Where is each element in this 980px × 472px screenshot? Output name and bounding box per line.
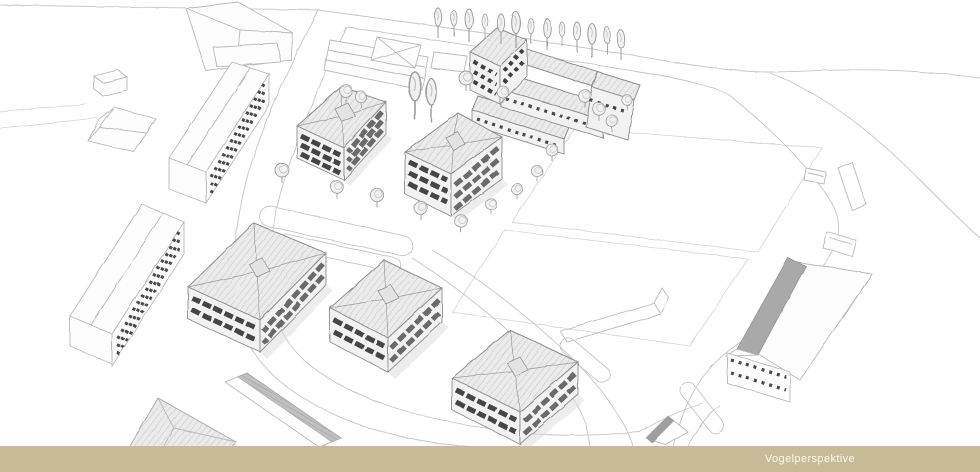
- new-building-upper-west: [297, 87, 392, 186]
- field-wall: [560, 303, 661, 342]
- sketch-scene: [0, 2, 980, 471]
- context-flat-complex: [324, 37, 467, 90]
- caption-bar: Vogelperspektive: [0, 446, 980, 472]
- context-small-gable-south: [646, 416, 688, 445]
- context-building-gable-north: [186, 2, 293, 71]
- new-building-south-2: [330, 260, 449, 379]
- context-minor-structure: [838, 162, 866, 210]
- context-building-gable-east: [726, 258, 872, 402]
- parking-bay: [677, 379, 727, 436]
- context-slab-building-b: [70, 204, 184, 366]
- presentation-slide: Vogelperspektive: [0, 0, 980, 472]
- context-slab-building-a: [169, 62, 269, 203]
- site-perspective-drawing: [0, 0, 980, 472]
- new-building-south-3: [452, 330, 585, 450]
- context-shed-box: [94, 70, 127, 96]
- car-shapes: [804, 168, 856, 256]
- slide-caption: Vogelperspektive: [700, 446, 920, 472]
- context-building-hip-west: [88, 107, 156, 152]
- new-building-south-1: [188, 223, 333, 359]
